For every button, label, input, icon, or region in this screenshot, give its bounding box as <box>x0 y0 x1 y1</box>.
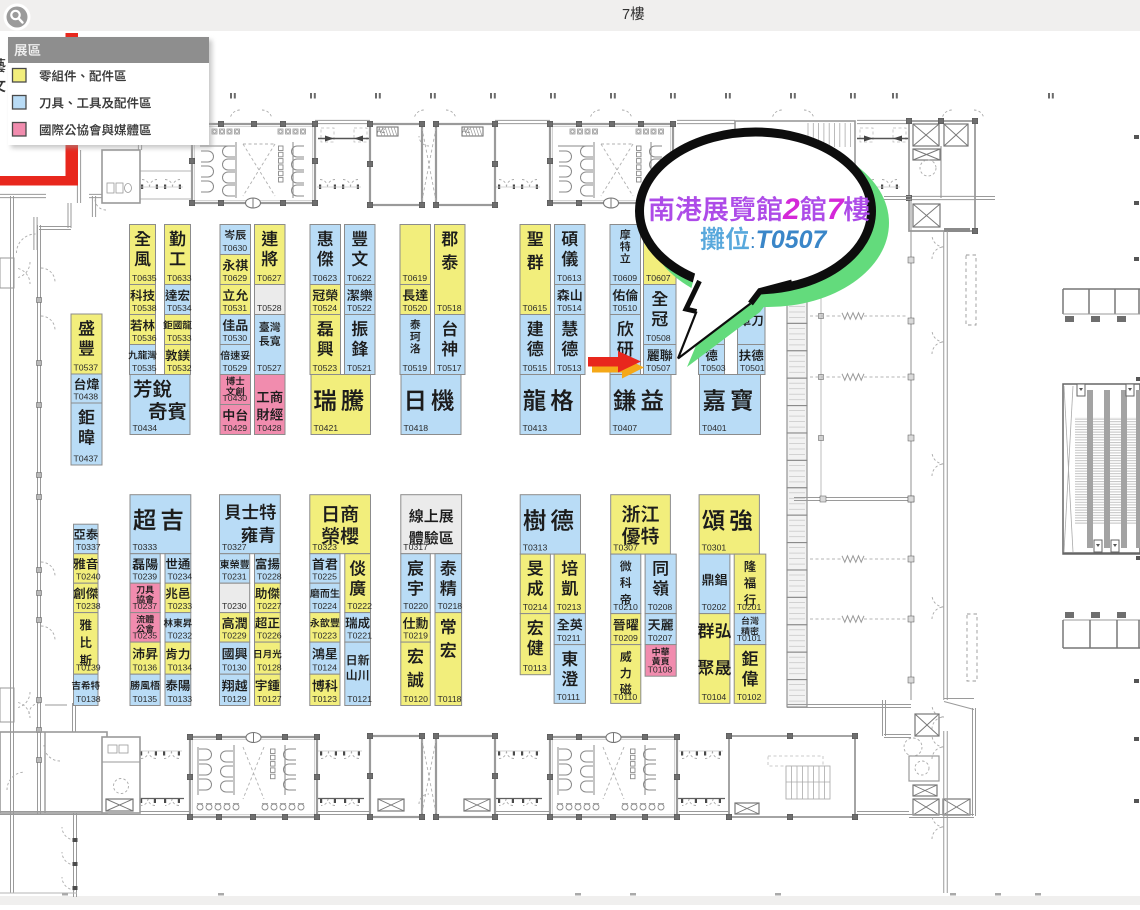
svg-text:T0136: T0136 <box>133 663 158 673</box>
svg-text:永歆豐: 永歆豐 <box>310 615 340 630</box>
svg-text:晉曜: 晉曜 <box>613 615 639 634</box>
svg-text:日機: 日機 <box>404 382 459 416</box>
svg-text:博科: 博科 <box>312 675 338 694</box>
svg-text:鼎錩: 鼎錩 <box>701 569 727 588</box>
svg-text:T0534: T0534 <box>167 303 192 313</box>
svg-text:T0201: T0201 <box>737 602 762 612</box>
svg-text:展區: 展區 <box>14 39 41 59</box>
svg-text:九龍灣: 九龍灣 <box>128 348 157 362</box>
svg-text:磊陽: 磊陽 <box>132 554 158 573</box>
svg-text:T0110: T0110 <box>613 692 637 702</box>
svg-text:T0223: T0223 <box>312 631 337 641</box>
svg-text:科技: 科技 <box>130 285 156 304</box>
svg-text:T0101: T0101 <box>737 633 762 643</box>
svg-text:力: 力 <box>620 664 632 681</box>
svg-text:富揚: 富揚 <box>255 554 281 573</box>
svg-text:超正: 超正 <box>255 613 280 632</box>
svg-text:T0518: T0518 <box>437 303 462 313</box>
svg-text:T0413: T0413 <box>523 423 548 433</box>
svg-text:T0220: T0220 <box>403 601 428 611</box>
svg-text:神: 神 <box>441 335 458 360</box>
svg-text:兆邑: 兆邑 <box>165 583 190 602</box>
svg-text:T0515: T0515 <box>523 363 548 373</box>
svg-text:T0228: T0228 <box>257 572 282 582</box>
svg-text:森山: 森山 <box>557 285 583 304</box>
svg-text:T0207: T0207 <box>648 633 673 643</box>
svg-text:麗聯: 麗聯 <box>647 345 673 364</box>
svg-text:T0428: T0428 <box>257 423 282 433</box>
svg-text:T0407: T0407 <box>613 423 638 433</box>
svg-text:瑞成: 瑞成 <box>345 613 371 632</box>
svg-text:T0533: T0533 <box>167 333 192 343</box>
svg-text:T0232: T0232 <box>168 631 193 641</box>
svg-text:T0635: T0635 <box>132 273 157 283</box>
svg-text:成: 成 <box>527 575 544 600</box>
svg-text:T0507: T0507 <box>646 363 671 373</box>
svg-text:T0429: T0429 <box>223 423 248 433</box>
svg-text:藝: 藝 <box>0 55 6 76</box>
svg-text:澄: 澄 <box>561 665 578 690</box>
svg-text:宇: 宇 <box>407 574 424 599</box>
svg-text:日月光: 日月光 <box>253 646 282 660</box>
svg-text:倍速妥: 倍速妥 <box>220 347 250 362</box>
svg-text:T0225: T0225 <box>312 572 337 582</box>
svg-text:T0233: T0233 <box>168 601 193 611</box>
svg-text:天麗: 天麗 <box>648 615 674 634</box>
svg-text:國際公協會與媒體區: 國際公協會與媒體區 <box>39 119 152 138</box>
svg-text:T0503: T0503 <box>701 363 726 373</box>
svg-text:長寬: 長寬 <box>259 333 281 349</box>
svg-text:T0108: T0108 <box>648 665 673 675</box>
svg-text:T0120: T0120 <box>403 694 428 704</box>
svg-text:洛: 洛 <box>410 341 421 357</box>
svg-text:科: 科 <box>620 574 632 591</box>
svg-text:刀具、工具及配件區: 刀具、工具及配件區 <box>39 92 152 111</box>
svg-text:T0301: T0301 <box>702 543 727 553</box>
svg-text:沛昇: 沛昇 <box>132 644 158 663</box>
svg-text:T0218: T0218 <box>438 601 463 611</box>
svg-text:吉希特: 吉希特 <box>71 678 100 692</box>
svg-text:泰陽: 泰陽 <box>165 675 191 694</box>
svg-text:T0607: T0607 <box>646 273 671 283</box>
svg-text:風: 風 <box>134 245 151 270</box>
svg-text:鉅國龍: 鉅國龍 <box>163 318 192 332</box>
svg-text:長達: 長達 <box>402 285 428 304</box>
svg-text:宏: 宏 <box>407 643 424 668</box>
svg-text:T0434: T0434 <box>133 423 158 433</box>
svg-text:T0237: T0237 <box>133 601 158 611</box>
svg-text:宇鍾: 宇鍾 <box>255 675 281 694</box>
svg-text:聚晟: 聚晟 <box>698 654 732 679</box>
svg-text:T0219: T0219 <box>403 631 428 641</box>
svg-text:T0139: T0139 <box>76 663 101 673</box>
svg-text:7樓: 7樓 <box>622 6 645 23</box>
svg-text:冠: 冠 <box>651 305 668 330</box>
svg-text:T0532: T0532 <box>167 363 192 373</box>
svg-text:T0213: T0213 <box>557 602 582 612</box>
svg-text:T0531: T0531 <box>223 303 248 313</box>
svg-text:翔越: 翔越 <box>222 675 248 694</box>
svg-text:嘉寶: 嘉寶 <box>703 382 758 416</box>
svg-text:T0523: T0523 <box>313 363 338 373</box>
svg-text:T0418: T0418 <box>404 423 429 433</box>
svg-text:南港展覽館2館7樓: 南港展覽館2館7樓 <box>648 188 870 227</box>
svg-text:T0226: T0226 <box>257 631 282 641</box>
svg-text:T0437: T0437 <box>74 454 99 464</box>
svg-text:創傑: 創傑 <box>73 583 99 602</box>
svg-text:零組件、配件區: 零組件、配件區 <box>39 65 127 84</box>
svg-text:亞泰: 亞泰 <box>73 524 99 543</box>
svg-text:T0517: T0517 <box>437 363 462 373</box>
svg-text:微: 微 <box>620 557 632 574</box>
svg-text:T0211: T0211 <box>557 633 581 643</box>
svg-text:T0230: T0230 <box>222 601 247 611</box>
svg-text:T0323: T0323 <box>312 542 337 552</box>
svg-text:T0633: T0633 <box>167 273 192 283</box>
svg-text:T0134: T0134 <box>168 663 193 673</box>
svg-text:鎌益: 鎌益 <box>613 382 668 416</box>
svg-text:廣: 廣 <box>349 574 366 599</box>
svg-text:T0239: T0239 <box>133 572 158 582</box>
svg-text:助傑: 助傑 <box>255 583 281 602</box>
svg-text:T0508: T0508 <box>646 333 671 343</box>
svg-text:T0501: T0501 <box>740 363 765 373</box>
svg-text:龍格: 龍格 <box>523 382 578 416</box>
svg-text:凱: 凱 <box>561 575 578 600</box>
svg-text:暐: 暐 <box>78 424 95 449</box>
svg-text:T0138: T0138 <box>76 694 101 704</box>
svg-text:AC: AC <box>462 129 471 135</box>
svg-text:T0519: T0519 <box>403 363 428 373</box>
svg-text:T0521: T0521 <box>347 363 372 373</box>
svg-text:勝風梧: 勝風梧 <box>130 677 160 692</box>
svg-text:頌強: 頌強 <box>702 502 757 536</box>
svg-text:奇賓: 奇賓 <box>148 396 187 425</box>
svg-text:肯力: 肯力 <box>165 643 190 662</box>
svg-text:林東昇: 林東昇 <box>164 616 193 630</box>
svg-text:雅: 雅 <box>79 614 92 633</box>
svg-text:佳品: 佳品 <box>222 315 248 334</box>
svg-text:岑辰: 岑辰 <box>224 227 246 243</box>
svg-text:宏: 宏 <box>440 637 457 662</box>
svg-text:T0510: T0510 <box>613 303 638 313</box>
svg-text:中台: 中台 <box>222 405 248 424</box>
svg-text:AC: AC <box>377 129 386 135</box>
svg-text:T0613: T0613 <box>557 273 582 283</box>
svg-text:T0231: T0231 <box>222 572 247 582</box>
svg-text:群弘: 群弘 <box>698 617 732 642</box>
svg-text:T0527: T0527 <box>257 363 282 373</box>
svg-text:儀: 儀 <box>561 245 578 270</box>
svg-text:財經: 財經 <box>256 404 283 424</box>
svg-text:全英: 全英 <box>557 615 583 634</box>
svg-text:文: 文 <box>0 75 6 96</box>
svg-text:東榮豐: 東榮豐 <box>220 556 250 571</box>
svg-text:健: 健 <box>527 634 544 659</box>
svg-text:T0627: T0627 <box>257 273 282 283</box>
svg-text:T0129: T0129 <box>222 694 247 704</box>
svg-text:鋒: 鋒 <box>351 335 368 360</box>
svg-text:T0623: T0623 <box>313 273 338 283</box>
svg-text:T0629: T0629 <box>223 273 248 283</box>
svg-text:T0102: T0102 <box>737 692 762 702</box>
svg-text:T0238: T0238 <box>76 601 101 611</box>
svg-text:T0221: T0221 <box>347 631 372 641</box>
svg-text:樹德: 樹德 <box>523 502 578 536</box>
svg-text:T0210: T0210 <box>613 602 638 612</box>
svg-text:山川: 山川 <box>346 667 370 684</box>
svg-text:T0530: T0530 <box>223 333 248 343</box>
svg-text:磨而生: 磨而生 <box>310 585 340 600</box>
svg-text:興: 興 <box>317 335 334 360</box>
svg-text:T0528: T0528 <box>257 303 282 313</box>
svg-text:T0222: T0222 <box>347 601 372 611</box>
svg-text:鴻星: 鴻星 <box>312 644 338 663</box>
svg-text:郡: 郡 <box>441 225 458 250</box>
svg-text:T0622: T0622 <box>347 273 372 283</box>
svg-text:貝士特: 貝士特 <box>224 500 277 525</box>
svg-text:T0209: T0209 <box>613 633 638 643</box>
svg-text:T0133: T0133 <box>168 694 193 704</box>
svg-text:T0214: T0214 <box>523 602 548 612</box>
svg-text:T0113: T0113 <box>523 663 547 673</box>
svg-text:T0327: T0327 <box>222 542 247 552</box>
svg-text:德: 德 <box>527 335 544 360</box>
svg-text:潔樂: 潔樂 <box>347 285 373 304</box>
svg-text:T0224: T0224 <box>312 601 337 611</box>
svg-text:誠: 誠 <box>407 666 424 691</box>
svg-text:超吉: 超吉 <box>133 502 188 536</box>
svg-text:群: 群 <box>527 249 544 274</box>
svg-text:T0421: T0421 <box>314 423 339 433</box>
svg-text:T0121: T0121 <box>347 694 372 704</box>
svg-text:敦鎂: 敦鎂 <box>165 345 191 364</box>
svg-text:攤位:T0507: 攤位:T0507 <box>700 220 828 256</box>
svg-text:T0609: T0609 <box>613 273 638 283</box>
svg-text:文: 文 <box>351 245 368 270</box>
svg-text:T0227: T0227 <box>257 601 282 611</box>
svg-text:佑倫: 佑倫 <box>612 285 638 304</box>
svg-text:立: 立 <box>620 251 631 267</box>
svg-text:比: 比 <box>79 632 92 651</box>
svg-text:T0401: T0401 <box>702 423 727 433</box>
svg-text:T0524: T0524 <box>313 303 338 313</box>
svg-text:T0127: T0127 <box>257 694 282 704</box>
svg-text:立允: 立允 <box>222 285 248 304</box>
svg-text:冠榮: 冠榮 <box>312 285 338 304</box>
svg-text:嶺: 嶺 <box>652 575 669 600</box>
svg-text:T0438: T0438 <box>74 392 99 402</box>
svg-text:T0124: T0124 <box>312 663 337 673</box>
svg-text:T0130: T0130 <box>222 663 247 673</box>
svg-text:T0333: T0333 <box>133 542 158 552</box>
svg-text:常: 常 <box>440 613 457 638</box>
svg-text:T0514: T0514 <box>557 303 582 313</box>
svg-text:將: 將 <box>261 245 278 270</box>
svg-text:若林: 若林 <box>130 315 156 334</box>
svg-text:T0529: T0529 <box>223 363 248 373</box>
svg-text:T0313: T0313 <box>523 543 548 553</box>
svg-text:台煒: 台煒 <box>73 374 99 393</box>
svg-text:T0111: T0111 <box>557 692 581 702</box>
svg-text:T0520: T0520 <box>403 303 428 313</box>
svg-text:T0118: T0118 <box>438 694 462 704</box>
svg-text:T0202: T0202 <box>702 602 727 612</box>
svg-text:T0208: T0208 <box>648 602 673 612</box>
svg-text:線上展: 線上展 <box>409 506 454 527</box>
svg-text:工: 工 <box>169 245 186 270</box>
svg-text:豐: 豐 <box>78 335 95 360</box>
svg-text:傑: 傑 <box>317 245 334 270</box>
svg-text:T0536: T0536 <box>132 333 157 343</box>
svg-text:永祺: 永祺 <box>222 255 248 274</box>
svg-text:雅音: 雅音 <box>73 554 98 573</box>
svg-text:T0630: T0630 <box>223 243 248 253</box>
svg-text:國興: 國興 <box>222 644 248 663</box>
svg-text:仕勳: 仕勳 <box>403 613 429 632</box>
svg-text:T0538: T0538 <box>132 303 157 313</box>
svg-text:T0430: T0430 <box>223 393 248 403</box>
svg-text:偉: 偉 <box>742 665 759 690</box>
svg-text:德: 德 <box>561 335 578 360</box>
svg-text:瑞騰: 瑞騰 <box>313 382 368 416</box>
svg-text:T0537: T0537 <box>74 363 99 373</box>
svg-text:T0619: T0619 <box>403 273 428 283</box>
svg-text:T0615: T0615 <box>523 303 548 313</box>
svg-text:T0535: T0535 <box>132 363 157 373</box>
svg-text:T0240: T0240 <box>76 572 101 582</box>
svg-text:T0135: T0135 <box>133 694 158 704</box>
svg-text:T0307: T0307 <box>613 543 638 553</box>
svg-text:扶德: 扶德 <box>739 345 765 364</box>
svg-text:達宏: 達宏 <box>165 285 190 304</box>
svg-text:T0123: T0123 <box>312 694 337 704</box>
svg-text:聖: 聖 <box>527 225 544 250</box>
svg-text:T0128: T0128 <box>257 663 282 673</box>
svg-text:T0522: T0522 <box>347 303 372 313</box>
svg-text:T0229: T0229 <box>222 631 247 641</box>
svg-text:T0317: T0317 <box>403 542 428 552</box>
svg-text:T0337: T0337 <box>76 542 101 552</box>
svg-text:泰: 泰 <box>441 249 458 274</box>
svg-text:T0235: T0235 <box>133 631 158 641</box>
svg-text:T0513: T0513 <box>557 363 582 373</box>
svg-text:首君: 首君 <box>312 554 338 573</box>
svg-text:T0104: T0104 <box>702 692 727 702</box>
svg-text:威: 威 <box>620 648 632 665</box>
svg-text:T0234: T0234 <box>168 572 193 582</box>
svg-text:精: 精 <box>440 574 457 599</box>
svg-text:世通: 世通 <box>165 554 191 573</box>
svg-text:高潤: 高潤 <box>222 613 248 632</box>
